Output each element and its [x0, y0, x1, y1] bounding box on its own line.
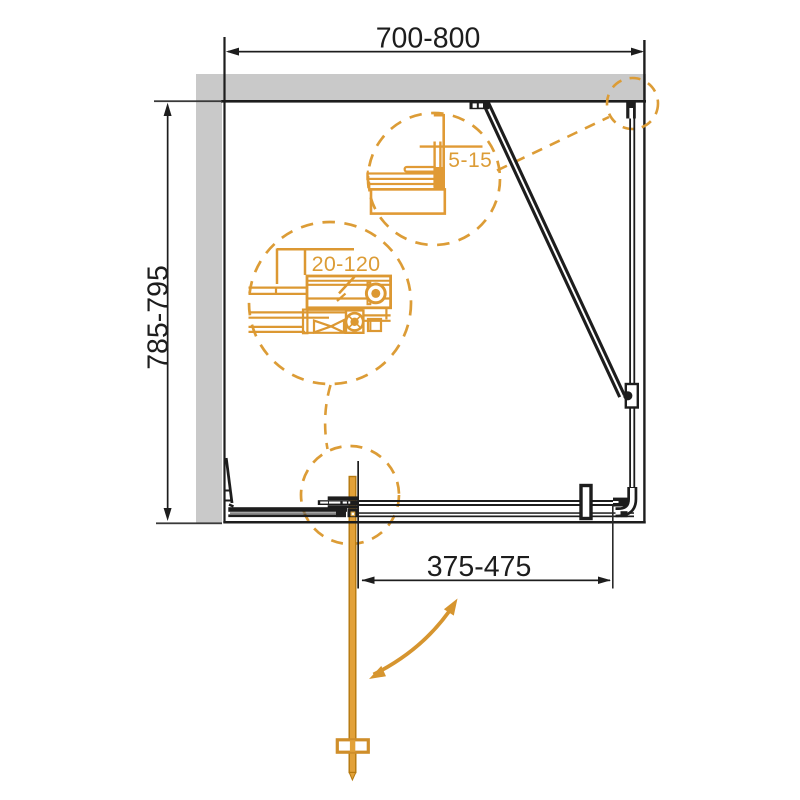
svg-text:375-475: 375-475	[427, 551, 532, 583]
svg-text:5-15: 5-15	[448, 149, 492, 172]
svg-text:20-120: 20-120	[312, 252, 381, 276]
svg-text:700-800: 700-800	[376, 23, 481, 55]
svg-text:785-795: 785-795	[142, 265, 174, 370]
